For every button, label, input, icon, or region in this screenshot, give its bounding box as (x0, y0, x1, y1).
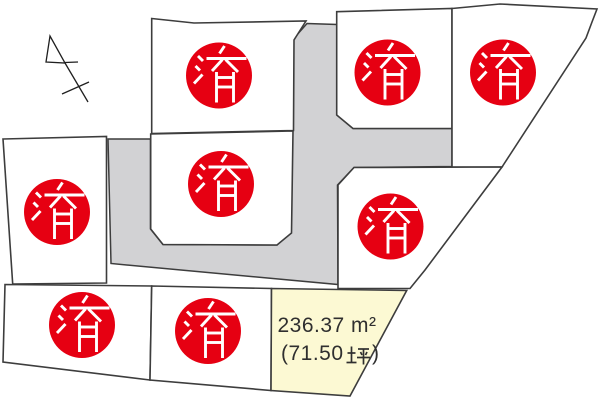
available-area-tsubo-suffix: ) (372, 342, 380, 365)
sold-stamp-icon (355, 40, 421, 106)
sold-stamp-icon (49, 292, 115, 358)
sold-stamp-icon (470, 40, 536, 106)
sold-stamp-icon (358, 194, 424, 260)
available-area-tsubo-prefix: (71.50 (281, 342, 344, 365)
sold-stamp-icon (175, 298, 241, 364)
sold-stamp-icon (186, 43, 252, 109)
sold-stamp-icon (24, 179, 90, 245)
available-area-m2-label: 236.37 m² (277, 314, 376, 337)
lot-map: 236.37 m² (71.50 ) (0, 0, 600, 404)
sold-stamp-icon (188, 151, 254, 217)
